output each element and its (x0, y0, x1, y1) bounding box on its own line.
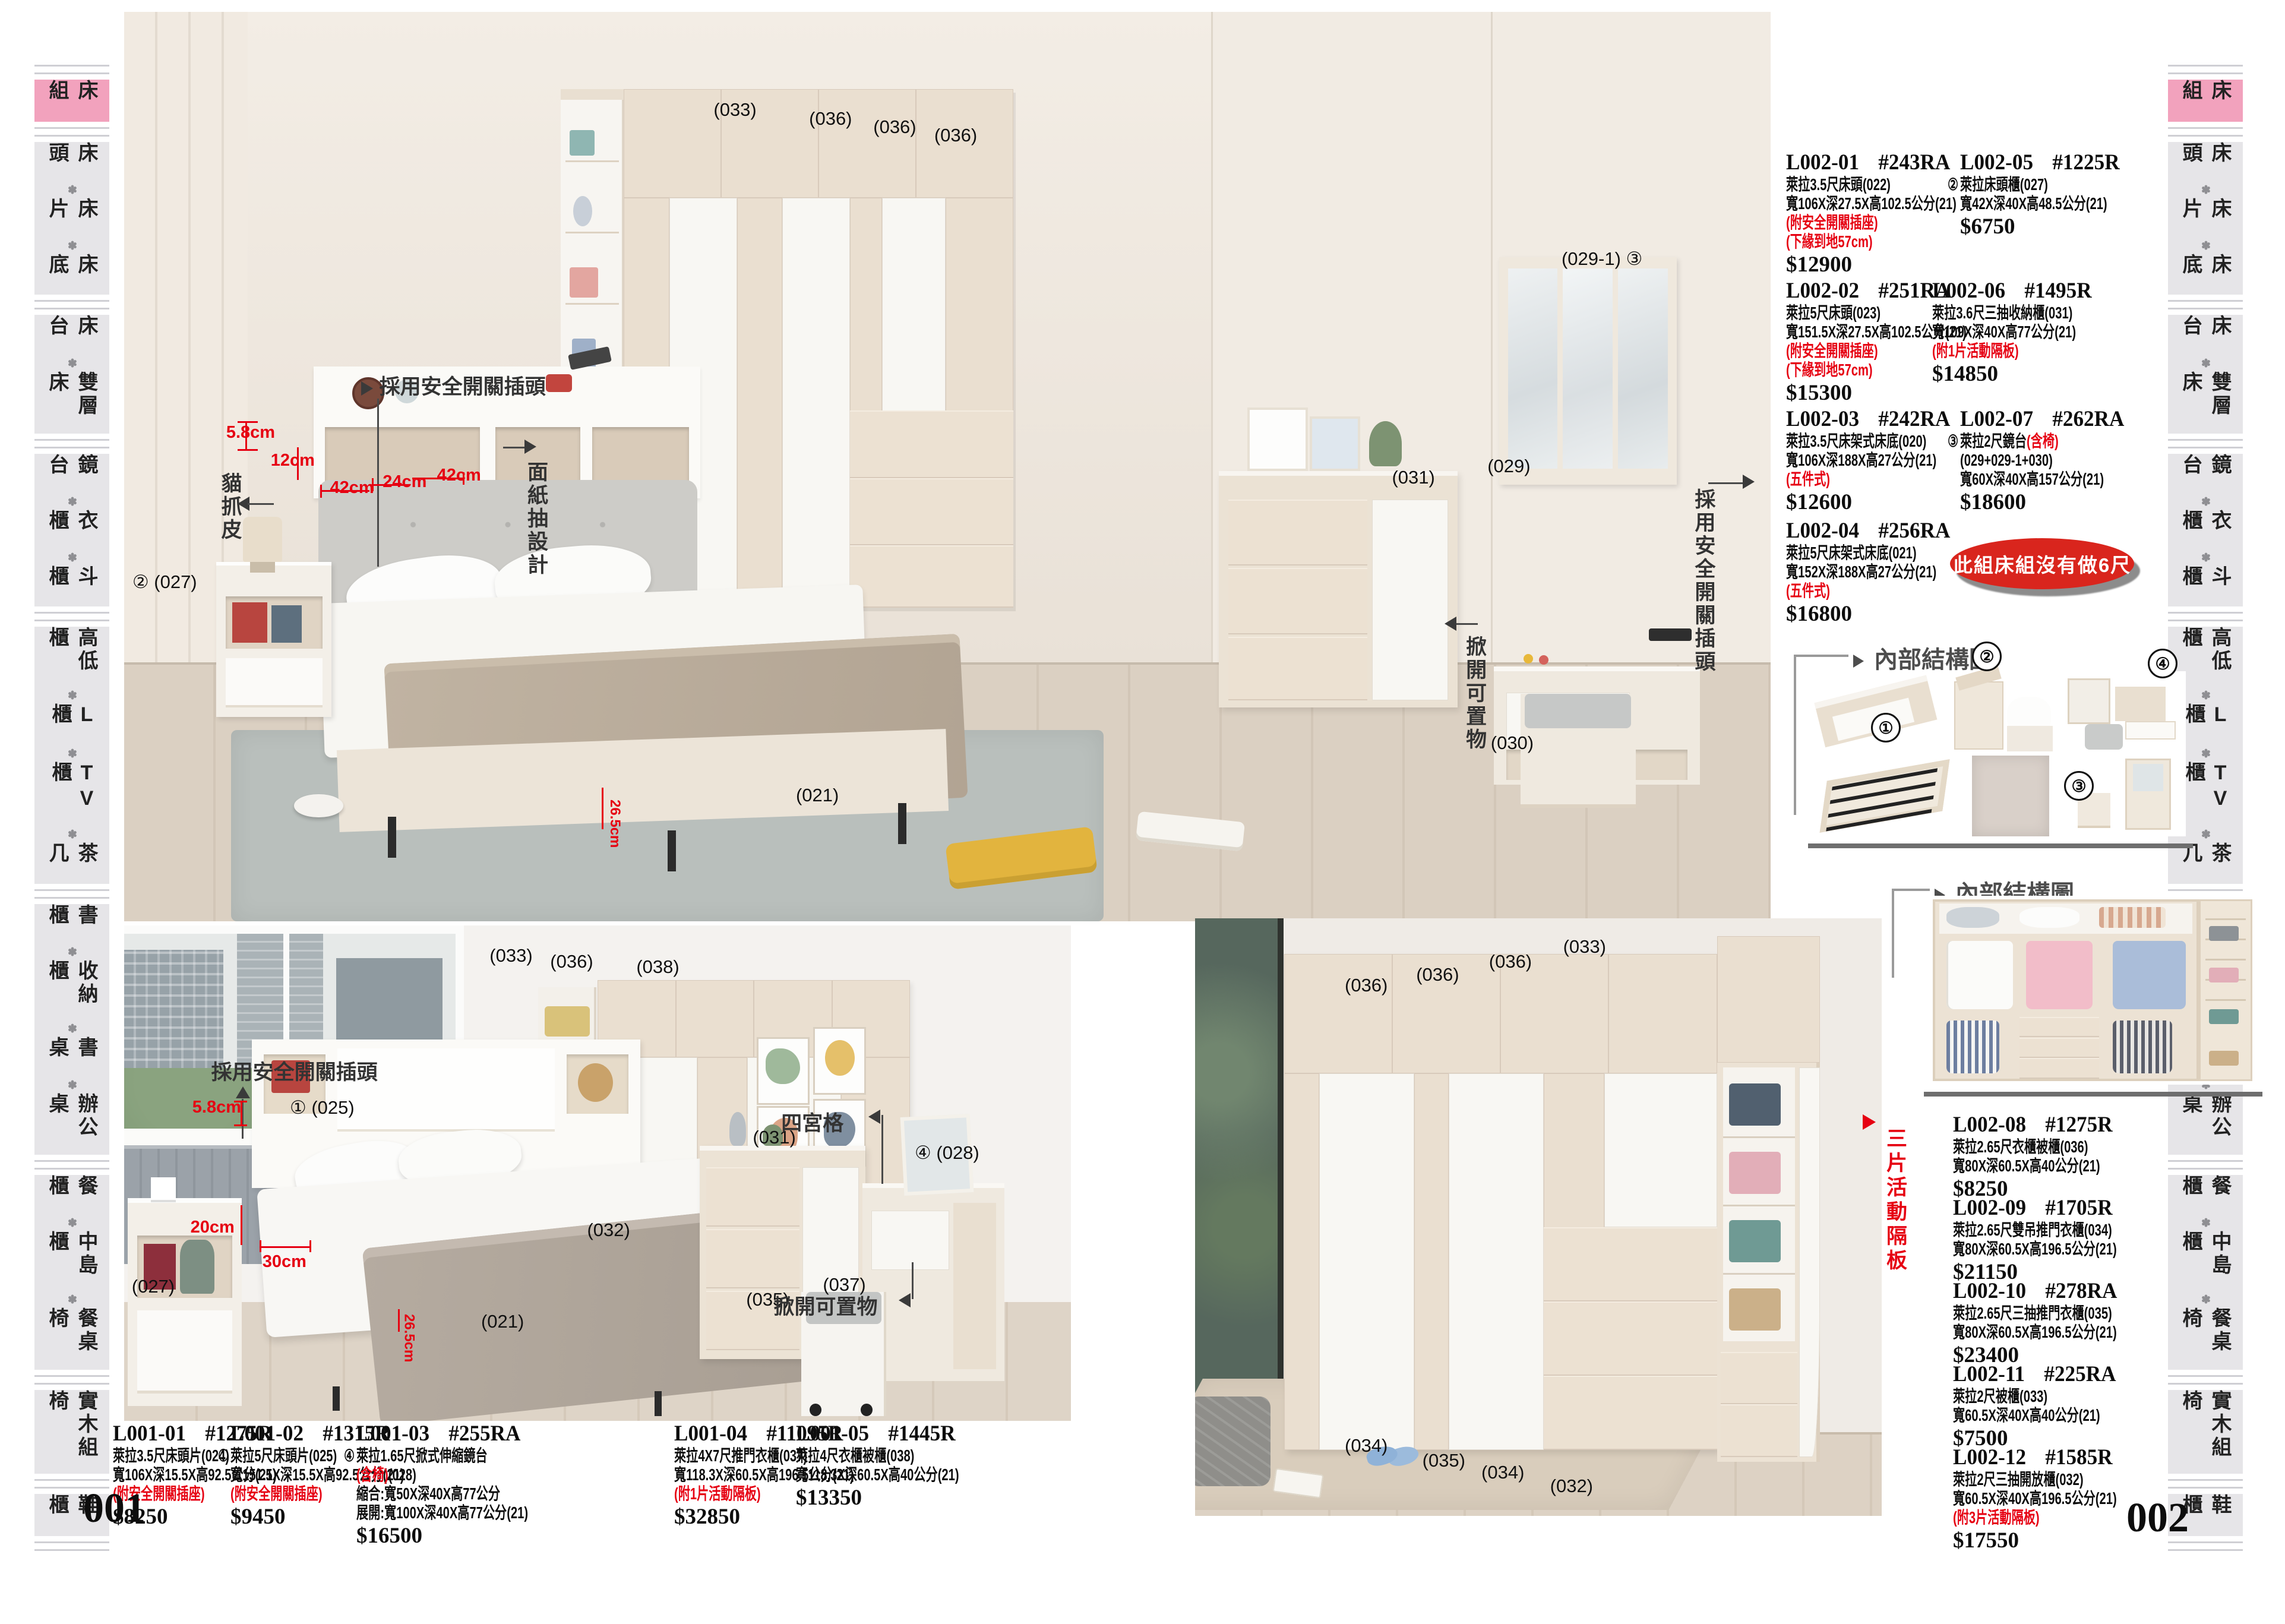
product-spec-line: 寬80X深60.5X高196.5公分(21) (1953, 1240, 2175, 1259)
decor-shape: L001-02 (230, 1421, 304, 1446)
part-code-label: (033) (489, 945, 532, 966)
product-spec-line: 寬151.5X深27.5X高102.5公分(21) (1786, 323, 1932, 342)
decor-shape (372, 478, 374, 491)
decor-shape: 寬118.3X深60.5X高40公分(21) (796, 1465, 959, 1484)
decor-shape: 萊拉1.65尺掀式伸縮鏡台 (356, 1446, 488, 1465)
decor-shape (2209, 1051, 2239, 1066)
part-code-label: (036) (550, 951, 593, 972)
plug-note: 採用安全開關插頭 (380, 370, 546, 400)
decor-shape (373, 484, 409, 486)
sidebar-item[interactable]: 床組 (2168, 80, 2243, 122)
decor-shape: 萊拉床頭櫃(027) (1960, 175, 2048, 194)
decor-shape: 萊拉4X7尺推門衣櫃(037) (674, 1446, 807, 1465)
labels-layer: (036)(036)(036)(033)(034)(035)(034)(032) (1195, 918, 1882, 1516)
decor-shape: ③ (2071, 776, 2086, 796)
decor-shape (234, 1101, 247, 1102)
decor-shape (260, 1246, 311, 1248)
product-spec-line: 寬152X深188X高27公分(21) (1786, 563, 1932, 582)
decor-shape (260, 1240, 261, 1252)
decor-shape (2115, 687, 2166, 721)
dim-42cm: 42cm (330, 478, 374, 498)
decor-shape (241, 1205, 242, 1245)
product-spec-line: 萊拉2.65尺三抽推門衣櫃(035) (1953, 1304, 2175, 1323)
decor-shape: (附1片活動隔板) (674, 1484, 761, 1503)
decor-shape (912, 1262, 914, 1299)
catalog-spread: { "accent_colors": {"red": "#e60012", "p… (0, 0, 2285, 1624)
decor-shape: ✽ (2199, 495, 2212, 509)
product-spec-line: 萊拉2尺三抽開放櫃(032) (1953, 1470, 2175, 1489)
product-spec-line: ④萊拉1.65尺掀式伸縮鏡台 (356, 1446, 536, 1465)
decor-shape (245, 421, 247, 450)
lift-note-b: 掀開可置物 (773, 1290, 877, 1320)
decor-shape: 餐桌椅 (43, 1307, 101, 1369)
triangle-marker-icon (1853, 655, 1870, 668)
decor-shape: 萊拉2尺被櫃(033) (1953, 1387, 2047, 1405)
product-spec-line: (含椅)(028) (356, 1465, 536, 1484)
decor-shape (34, 300, 109, 309)
product-entry: L002-08#1275R萊拉2.65尺衣櫃被櫃(036)寬80X深60.5X高… (1953, 1112, 2262, 1203)
decor-shape: L002-03 (1786, 407, 1859, 431)
decor-shape: 床台 (2176, 315, 2235, 356)
product-entry: L002-07#262RA③萊拉2尺鏡台(含椅)(029+029-1+030)寬… (1960, 406, 2186, 516)
part-code-label: (029-1) ③ (1562, 248, 1642, 270)
decor-shape: 實木組椅 (43, 1390, 101, 1474)
product-spec-line: 展開:寬100X深40X高77公分(21) (356, 1503, 536, 1522)
decor-shape: (028) (388, 1465, 416, 1484)
decor-shape: ④ (344, 1446, 356, 1465)
product-spec-line: 萊拉2.65尺衣櫃被櫃(036) (1953, 1138, 2175, 1157)
product-entry: L002-11#225RA萊拉2尺被櫃(033)寬60.5X深40X高40公分(… (1953, 1361, 2262, 1452)
decor-shape: #1445R (888, 1421, 955, 1446)
dim-20cm: 20cm (191, 1218, 235, 1237)
decor-shape: #255RA (448, 1421, 520, 1446)
decor-shape: ✽ (65, 239, 78, 253)
decor-shape: 收納櫃 (43, 960, 101, 1022)
thumb-bedframe (1810, 759, 1959, 835)
product-spec-line: (附安全開關插座) (1786, 213, 1932, 232)
product-entry: L002-01#243RA萊拉3.5尺床頭(022)寬106X深27.5X高10… (1786, 150, 1988, 279)
decor-shape: (下緣到地57cm) (1786, 232, 1873, 251)
decor-shape (881, 1115, 883, 1184)
circled-1: ① (1871, 713, 1901, 743)
sidebar-item[interactable]: 鏡台✽衣櫃✽斗櫃 (34, 454, 109, 607)
decor-shape: 衣櫃 (43, 510, 101, 551)
decor-shape: L001-01 (113, 1421, 186, 1446)
structure-diagram-1: 內部結構圖 ① ② ④ ③ (1794, 637, 2204, 862)
decor-shape: 床片 (43, 198, 101, 239)
decor-shape (241, 1101, 242, 1126)
product-code: L001-05#1445R (796, 1421, 1033, 1446)
decor-shape: (附安全開關插座) (1786, 213, 1878, 232)
decor-shape (2113, 1020, 2173, 1073)
arrow-right-icon (524, 440, 536, 454)
thumb-nightstand-open (1945, 671, 2055, 757)
decor-shape: #242RA (1878, 407, 1950, 431)
blanket (2099, 907, 2166, 928)
decor-shape: (附安全開關插座) (230, 1484, 323, 1503)
product-spec-line: 寬42X深40X高48.5公分(21) (1960, 194, 2123, 213)
product-code: L002-07#262RA (1960, 406, 2175, 432)
decor-shape: 茶几 (43, 842, 101, 883)
part-code-label: (033) (713, 99, 756, 121)
decor-shape: 高低櫃 (43, 627, 101, 688)
sidebar-item[interactable]: 書櫃✽收納櫃✽書桌✽辦公桌 (34, 904, 109, 1155)
decor-shape (1924, 1092, 2262, 1097)
decor-shape: L002-02 (1786, 279, 1859, 303)
decor-shape: L002-09 (1953, 1196, 2026, 1220)
decor-shape: ✽ (65, 1022, 78, 1036)
decor-shape (1708, 482, 1744, 484)
decor-shape: L002-12 (1953, 1445, 2026, 1470)
arrow-left-icon (868, 1110, 880, 1124)
product-entry: L002-06#1495R萊拉3.6尺三抽收納櫃(031)寬109X深40X高7… (1932, 278, 2182, 388)
decor-shape: #256RA (1878, 519, 1950, 543)
page-number-right: 002 (2126, 1495, 2189, 1542)
arrow-left-icon (1445, 617, 1456, 631)
decor-shape (34, 1160, 109, 1170)
decor-shape: 鏡台 (43, 454, 101, 495)
product-spec-line: 寬106X深27.5X高102.5公分(21) (1786, 194, 1932, 213)
product-spec-line: (029+029-1+030) (1960, 451, 2123, 470)
decor-shape (2133, 764, 2163, 791)
decor-shape (34, 612, 109, 621)
decor-shape: ✽ (65, 551, 78, 565)
wardrobe-interior (1926, 896, 2259, 1085)
part-code-label: (032) (1550, 1475, 1593, 1497)
decor-shape: ② (1979, 647, 1994, 666)
decor-shape (2019, 1017, 2099, 1038)
decor-shape: ✽ (65, 1079, 78, 1092)
product-entry: L001-05#1445R萊拉4尺衣櫃被櫃(038)寬118.3X深60.5X高… (796, 1421, 1045, 1512)
decor-shape: (附3片活動隔板) (1953, 1508, 2040, 1527)
decor-shape: 床組 (2176, 80, 2235, 122)
part-code-label: (036) (1489, 951, 1532, 972)
part-code-label: (036) (1345, 975, 1388, 996)
product-spec-line: 萊拉3.5尺床架式床底(020) (1786, 432, 1932, 451)
decor-shape: 寬80X深60.5X高196.5公分(21) (1953, 1240, 2117, 1258)
product-entry: L002-09#1705R萊拉2.65尺雙吊推門衣櫃(034)寬80X深60.5… (1953, 1195, 2262, 1286)
product-spec-line: (下緣到地57cm) (1786, 232, 1932, 251)
product-price: $12900 (1786, 251, 1988, 279)
decor-shape (34, 889, 109, 899)
decor-shape: 萊拉3.5尺床頭(022) (1786, 175, 1891, 194)
decor-shape (2113, 941, 2186, 1009)
decor-shape (2209, 1009, 2239, 1024)
decor-shape: ① (1878, 718, 1893, 738)
part-code-label: (036) (1416, 964, 1459, 985)
decor-shape: #243RA (1878, 150, 1950, 175)
lift-note: 掀開可置物 (1459, 636, 1490, 751)
labels-layer: (033)(036)(038)① (025)(027)(032)(035)(03… (124, 925, 1071, 1421)
decor-shape: 寬60.5X深40X高40公分(21) (1953, 1406, 2100, 1424)
decor-shape (2019, 1058, 2099, 1079)
decor-shape: 寬109X深40X高77公分(21) (1932, 323, 2076, 341)
decor-shape (2026, 941, 2093, 1009)
photo-main-bedroom: (033)(036)(036)(036)② (027)(021)(031)(02… (124, 12, 1771, 921)
decor-shape (2125, 721, 2176, 740)
decor-shape (412, 478, 463, 479)
decor-shape: L001-05 (796, 1421, 869, 1446)
decor-shape (1954, 681, 2003, 750)
grid-note: 四宮格 (781, 1107, 843, 1137)
decor-shape: ✽ (65, 1217, 78, 1230)
product-entry: L002-10#278RA萊拉2.65尺三抽推門衣櫃(035)寬80X深60.5… (1953, 1278, 2262, 1369)
decor-shape (34, 1375, 109, 1385)
product-entry: L002-05#1225R②萊拉床頭櫃(027)寬42X深40X高48.5公分(… (1960, 150, 2186, 241)
product-spec-line: ②萊拉床頭櫃(027) (1960, 175, 2123, 194)
dim-30cm: 30cm (263, 1252, 306, 1272)
decor-shape: #225RA (2044, 1362, 2116, 1386)
product-spec-line: (五件式) (1786, 582, 1932, 601)
decor-shape (320, 485, 322, 497)
plug-note-b: 採用安全開關插頭 (211, 1056, 378, 1086)
decor-shape: (029+029-1+030) (1960, 451, 2053, 469)
red-arrow-right-icon (1863, 1114, 1876, 1130)
decor-shape (320, 490, 369, 492)
decor-shape: 萊拉5尺床架式床底(021) (1786, 544, 1917, 562)
part-code-label: (034) (1345, 1435, 1388, 1456)
left-category-sidebar: 床組床頭✽床片✽床底床台✽雙層床鏡台✽衣櫃✽斗櫃高低櫃✽L櫃✽TV櫃✽茶几書櫃✽… (34, 59, 109, 1556)
sidebar-item[interactable]: 高低櫃✽L櫃✽TV櫃✽茶几 (34, 627, 109, 884)
decor-shape: L002-08 (1953, 1113, 2026, 1137)
decor-shape: ✽ (65, 184, 78, 197)
decor-shape: #278RA (2045, 1279, 2117, 1303)
decor-shape (2168, 65, 2243, 74)
decor-shape: ✽ (2199, 184, 2212, 197)
decor-shape: 床組 (43, 80, 101, 122)
decor-shape: 雙層床 (43, 371, 101, 434)
decor-shape: ✽ (2199, 239, 2212, 253)
decor-shape (2209, 968, 2239, 982)
product-entry: L002-03#242RA萊拉3.5尺床架式床底(020)寬106X深188X高… (1786, 406, 1988, 516)
decor-shape (238, 421, 257, 423)
part-code-label: (029) (1487, 456, 1530, 477)
decor-shape: 萊拉3.6尺三抽收納櫃(031) (1932, 304, 2072, 322)
product-code: L002-06#1495R (1932, 278, 2169, 304)
dim-5-8cm: 5.8cm (226, 423, 275, 443)
decor-shape: L001-04 (674, 1421, 747, 1446)
decor-shape: ✽ (65, 747, 78, 761)
sidebar-item[interactable]: 床頭✽床片✽床底 (34, 142, 109, 295)
thumb-leather-swatch (1972, 756, 2049, 836)
page-number-left: 001 (83, 1485, 146, 1533)
arrow-right-icon (361, 381, 373, 396)
circled-4: ④ (2148, 649, 2177, 678)
product-price: $14850 (1932, 361, 2182, 388)
decor-shape (34, 439, 109, 448)
decor-shape: 寬80X深60.5X高40公分(21) (1953, 1157, 2100, 1175)
part-code-label: (021) (796, 785, 839, 806)
product-code: L002-11#225RA (1953, 1361, 2246, 1387)
product-spec-line: 萊拉4尺衣櫃被櫃(038) (796, 1446, 975, 1465)
product-spec-line: 寬118.3X深60.5X高40公分(21) (796, 1465, 975, 1484)
decor-shape (248, 503, 274, 505)
part-code-label: ② (027) (132, 571, 197, 593)
product-price: $13350 (796, 1484, 1045, 1512)
decor-shape (2068, 678, 2110, 725)
arrow-right-icon (1743, 475, 1755, 489)
decor-shape: L001-03 (356, 1421, 429, 1446)
decor-shape: 寬152X深188X高27公分(21) (1786, 563, 1936, 581)
decor-shape (1794, 655, 1796, 815)
dim-26-5cm: 26.5cm (400, 1314, 417, 1362)
decor-shape: L002-11 (1953, 1362, 2025, 1386)
decor-shape: 床台 (43, 315, 101, 356)
product-code: L001-03#255RA (356, 1421, 593, 1446)
decor-shape: 萊拉2.65尺雙吊推門衣櫃(034) (1953, 1221, 2112, 1239)
decor-shape: 床頭 (43, 142, 101, 183)
decor-shape: #1585R (2045, 1445, 2112, 1470)
decor-shape: 萊拉2.65尺三抽推門衣櫃(035) (1953, 1304, 2112, 1322)
decor-shape: L002-06 (1932, 279, 2005, 303)
decor-shape: 萊拉5尺床頭片(025) (230, 1446, 337, 1465)
decor-shape (234, 1124, 247, 1126)
part-code-label: (021) (481, 1311, 524, 1332)
product-spec-line: 萊拉5尺床頭(023) (1786, 304, 1932, 323)
product-entry: L002-12#1585R萊拉2尺三抽開放櫃(032)寬60.5X深40X高19… (1953, 1445, 2262, 1555)
decor-shape (398, 1309, 400, 1332)
product-spec-line: (附安全開關插座) (1786, 342, 1932, 361)
decor-shape: ✽ (65, 946, 78, 959)
decor-shape: L櫃 (46, 703, 98, 747)
decor-shape: (五件式) (1786, 470, 1830, 488)
product-code: L002-10#278RA (1953, 1278, 2246, 1304)
decor-shape: 書桌 (43, 1037, 101, 1078)
decor-shape: L002-10 (1953, 1279, 2026, 1303)
part-code-label: (027) (132, 1276, 175, 1297)
product-spec-line: (五件式) (1786, 470, 1932, 489)
decor-shape (309, 1240, 311, 1252)
dim-24cm: 24cm (383, 472, 426, 492)
decor-shape (297, 447, 299, 480)
decor-shape (34, 1541, 109, 1551)
decor-shape: 寬42X深40X高48.5公分(21) (1960, 194, 2107, 213)
part-code-label: (036) (809, 108, 852, 129)
decor-shape: #1275R (2045, 1113, 2112, 1137)
sidebar-item[interactable]: 實木組椅 (34, 1390, 109, 1474)
red-side-note: 三片活動隔板 (1880, 1127, 1910, 1274)
decor-shape: ② (1948, 175, 1960, 194)
decor-shape: 床底 (2176, 254, 2235, 295)
decor-shape (1946, 1020, 2000, 1073)
dim-12cm: 12cm (271, 451, 315, 470)
product-spec-line: (附1片活動隔板) (1932, 342, 2112, 361)
decor-shape: 書櫃 (43, 904, 101, 945)
decor-shape: ✽ (65, 357, 78, 371)
decor-shape (503, 447, 526, 448)
decor-shape: #1495R (2024, 279, 2091, 303)
decor-shape (1808, 843, 2193, 848)
decor-shape: 萊拉3.5尺床頭片(024) (113, 1446, 229, 1465)
product-code: L002-01#243RA (1786, 150, 1978, 175)
decor-shape: 縮合:寬50X深40X高77公分 (356, 1484, 500, 1503)
decor-shape: L002-07 (1960, 407, 2033, 431)
plug-note-2: 採用安全開關插頭 (1688, 488, 1718, 674)
decor-shape (2007, 726, 2053, 751)
decor-shape: 寬80X深60.5X高196.5公分(21) (1953, 1323, 2117, 1341)
sidebar-item[interactable]: 床組 (34, 80, 109, 122)
sidebar-item[interactable]: 餐櫃✽中島櫃✽餐桌椅 (34, 1175, 109, 1370)
product-code: L002-08#1275R (1953, 1112, 2246, 1138)
plug-connector-line (377, 399, 379, 567)
decor-shape (34, 127, 109, 137)
product-spec-line: 寬80X深60.5X高196.5公分(21) (1953, 1323, 2175, 1342)
decor-shape: 餐櫃 (43, 1175, 101, 1217)
part-code-label: ④ (028) (915, 1142, 979, 1164)
product-spec-line: 萊拉2尺被櫃(033) (1953, 1387, 2175, 1406)
labels-layer: (033)(036)(036)(036)② (027)(021)(031)(02… (124, 12, 1771, 921)
decor-shape: ✽ (65, 1293, 78, 1307)
product-spec-line: 縮合:寬50X深40X高77公分 (356, 1484, 536, 1503)
product-code: L002-09#1705R (1953, 1195, 2246, 1221)
part-code-label: (030) (1491, 732, 1534, 754)
product-spec-line: 萊拉2.65尺雙吊推門衣櫃(034) (1953, 1221, 2175, 1240)
decor-shape (2209, 926, 2239, 941)
product-spec-line: 寬60X深40X高157公分(21) (1960, 470, 2123, 489)
decor-shape: 中島櫃 (43, 1231, 101, 1293)
part-code-label: (036) (873, 116, 916, 138)
product-price: $17550 (1953, 1527, 2262, 1555)
decor-shape: 萊拉2.65尺衣櫃被櫃(036) (1953, 1138, 2088, 1156)
decor-shape: 斗櫃 (2176, 565, 2235, 606)
sidebar-item[interactable]: 床台✽雙層床 (34, 315, 109, 434)
product-spec-line: 萊拉3.6尺三抽收納櫃(031) (1932, 304, 2112, 323)
decor-shape (34, 65, 109, 74)
decor-shape: 展開:寬100X深40X高77公分(21) (356, 1503, 528, 1522)
decor-shape: 萊拉3.5尺床架式床底(020) (1786, 432, 1926, 450)
thumb-vanity-open (2060, 671, 2186, 757)
product-price: $12600 (1786, 489, 1988, 516)
product-spec-line: 寬151.5X深15.5X高92.5公分(21) (230, 1465, 372, 1484)
part-code-label: (032) (587, 1219, 630, 1241)
product-spec-line: 寬80X深60.5X高40公分(21) (1953, 1157, 2175, 1176)
structure-diagram-2: 內部結構圖 (1892, 874, 2281, 1107)
photo-single-bedroom: (033)(036)(038)① (025)(027)(032)(035)(03… (124, 925, 1071, 1421)
part-code-label: (034) (1481, 1462, 1524, 1483)
decor-shape: ① (218, 1446, 230, 1465)
decor-shape: 萊拉2尺三抽開放櫃(032) (1953, 1470, 2084, 1489)
decor-shape (2205, 918, 2245, 920)
circled-2: ② (1972, 642, 2002, 671)
decor-shape: 寬106X深27.5X高102.5公分(21) (1786, 194, 1957, 213)
decor-shape: #1225R (2052, 150, 2119, 175)
no-6ft-badge: 此組床組沒有做6尺 (1950, 538, 2134, 589)
part-code-label: (035) (1423, 1450, 1465, 1471)
decor-shape (2085, 724, 2123, 750)
decor-shape: 寬60.5X深40X高196.5公分(21) (1953, 1489, 2117, 1508)
decor-shape: (下緣到地57cm) (1786, 361, 1873, 379)
product-spec-line: 寬60.5X深40X高40公分(21) (1953, 1406, 2175, 1425)
decor-shape: ✽ (2199, 357, 2212, 371)
part-code-label: (033) (1563, 936, 1606, 958)
tissue-note: 面紙抽設計 (521, 461, 551, 577)
decor-shape (2019, 1038, 2099, 1059)
decor-shape: L002-04 (1786, 519, 1859, 543)
product-spec-line: 萊拉3.5尺床頭(022) (1786, 175, 1932, 194)
decor-shape: ✽ (65, 689, 78, 703)
part-code-label: (036) (934, 125, 977, 146)
decor-shape: 寬106X深188X高27公分(21) (1786, 451, 1936, 469)
decor-shape: (附1片活動隔板) (1932, 342, 2019, 360)
product-spec-line: 寬106X深188X高27公分(21) (1786, 451, 1932, 470)
decor-shape (1892, 889, 1894, 978)
decor-shape: ③ (1948, 432, 1960, 451)
product-price: $16500 (356, 1522, 606, 1550)
part-code-label: (038) (636, 956, 679, 978)
decor-shape (1794, 655, 1848, 657)
product-price: $6750 (1960, 213, 2186, 241)
decor-shape (1946, 941, 2013, 1009)
